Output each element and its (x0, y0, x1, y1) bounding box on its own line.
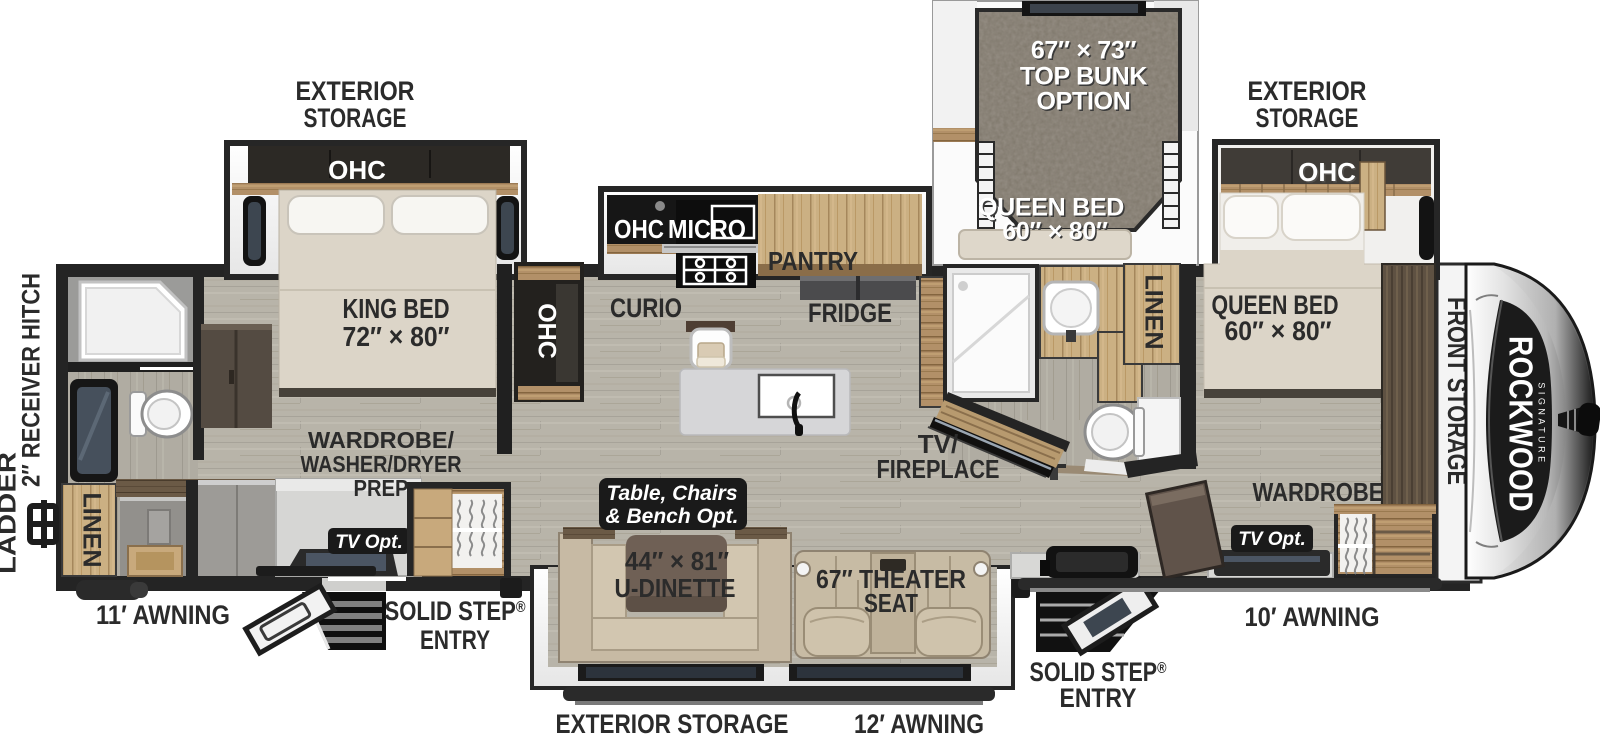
svg-text:OHC: OHC (532, 303, 560, 359)
svg-text:& Bench Opt.: & Bench Opt. (605, 505, 738, 528)
svg-text:WASHER/DRYER: WASHER/DRYER (301, 451, 462, 477)
svg-text:LINEN: LINEN (1139, 275, 1167, 350)
svg-text:72″ × 80″: 72″ × 80″ (343, 321, 450, 352)
svg-text:Table, Chairs: Table, Chairs (606, 482, 737, 505)
svg-text:11′ AWNING: 11′ AWNING (96, 600, 230, 630)
svg-text:LADDER: LADDER (0, 452, 22, 574)
svg-text:OPTION: OPTION (1036, 88, 1130, 116)
svg-text:SEAT: SEAT (864, 588, 918, 618)
svg-text:TV Opt.: TV Opt. (335, 532, 403, 553)
svg-text:67″ × 73″: 67″ × 73″ (1031, 37, 1137, 65)
svg-text:60″ × 80″: 60″ × 80″ (1002, 218, 1108, 246)
svg-text:PANTRY: PANTRY (768, 246, 858, 276)
svg-text:CURIO: CURIO (610, 293, 682, 323)
svg-text:EXTERIOR: EXTERIOR (296, 76, 415, 106)
svg-text:OHC: OHC (614, 214, 664, 244)
svg-text:OHC: OHC (1298, 157, 1356, 187)
svg-text:EXTERIOR: EXTERIOR (1248, 76, 1367, 106)
svg-text:KING BED: KING BED (343, 293, 450, 324)
svg-text:WARDROBE: WARDROBE (1253, 477, 1384, 507)
svg-text:TOP BUNK: TOP BUNK (1020, 63, 1147, 91)
svg-text:OHC: OHC (328, 155, 386, 185)
svg-text:STORAGE: STORAGE (304, 103, 407, 133)
svg-text:12′ AWNING: 12′ AWNING (854, 709, 984, 734)
svg-text:MICRO: MICRO (668, 214, 746, 244)
svg-text:PREP: PREP (354, 475, 409, 501)
svg-text:FIREPLACE: FIREPLACE (877, 454, 1000, 484)
svg-text:ROCKWOOD: ROCKWOOD (1502, 336, 1539, 512)
svg-text:U-DINETTE: U-DINETTE (615, 573, 736, 603)
svg-text:SIGNATURE: SIGNATURE (1537, 382, 1547, 465)
svg-text:STORAGE: STORAGE (1256, 103, 1359, 133)
svg-text:2″ RECEIVER HITCH: 2″ RECEIVER HITCH (18, 273, 46, 487)
svg-text:10′ AWNING: 10′ AWNING (1245, 602, 1380, 632)
svg-text:LINEN: LINEN (77, 493, 105, 568)
svg-text:EXTERIOR STORAGE: EXTERIOR STORAGE (556, 709, 789, 734)
svg-text:FRIDGE: FRIDGE (808, 298, 892, 328)
svg-text:ENTRY: ENTRY (1060, 683, 1137, 713)
svg-text:44″ × 81″: 44″ × 81″ (625, 546, 729, 576)
svg-text:TV Opt.: TV Opt. (1238, 529, 1306, 550)
svg-text:SOLID STEP®: SOLID STEP® (385, 596, 526, 626)
svg-text:ENTRY: ENTRY (420, 625, 490, 655)
svg-text:WARDROBE/: WARDROBE/ (308, 427, 455, 453)
svg-text:60″ × 80″: 60″ × 80″ (1225, 316, 1332, 346)
